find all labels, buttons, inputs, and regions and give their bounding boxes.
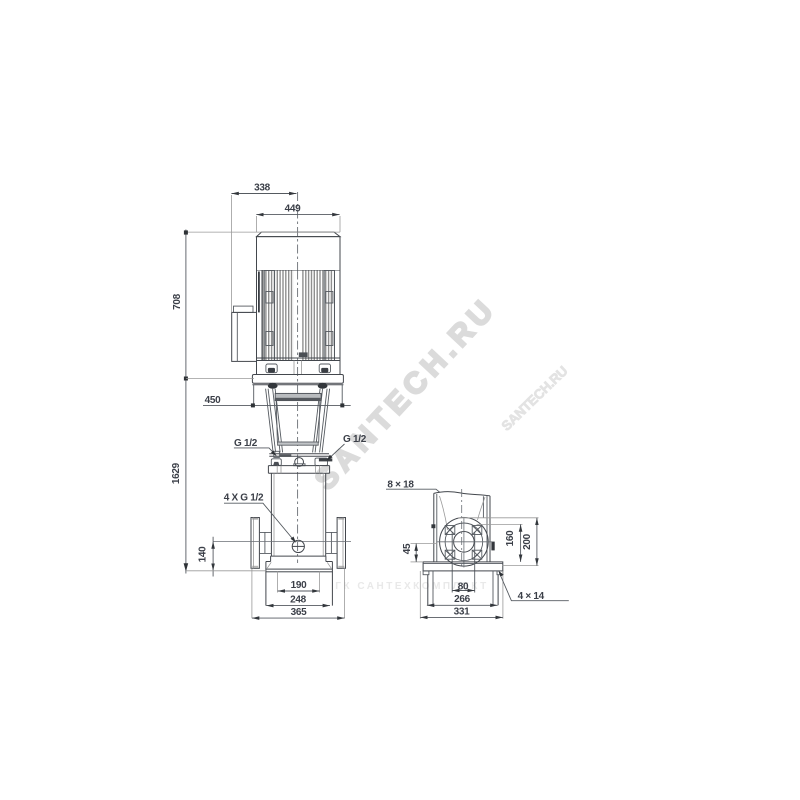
svg-text:266: 266 [454,594,471,605]
svg-text:450: 450 [205,395,222,406]
svg-text:338: 338 [254,183,271,194]
svg-text:4 X G 1/2: 4 X G 1/2 [224,493,264,504]
svg-text:331: 331 [454,606,471,617]
svg-text:G 1/2: G 1/2 [343,434,367,445]
svg-text:45: 45 [402,543,413,554]
svg-text:80: 80 [458,581,469,592]
svg-text:365: 365 [291,607,308,618]
svg-text:G 1/2: G 1/2 [234,438,258,449]
svg-text:1629: 1629 [171,462,182,484]
svg-text:140: 140 [198,546,209,563]
svg-text:190: 190 [291,580,308,591]
svg-text:449: 449 [285,204,302,215]
svg-text:160: 160 [505,530,516,547]
svg-text:8 × 18: 8 × 18 [387,479,414,490]
svg-text:248: 248 [290,595,307,606]
svg-text:708: 708 [172,293,183,310]
svg-text:200: 200 [522,533,533,550]
